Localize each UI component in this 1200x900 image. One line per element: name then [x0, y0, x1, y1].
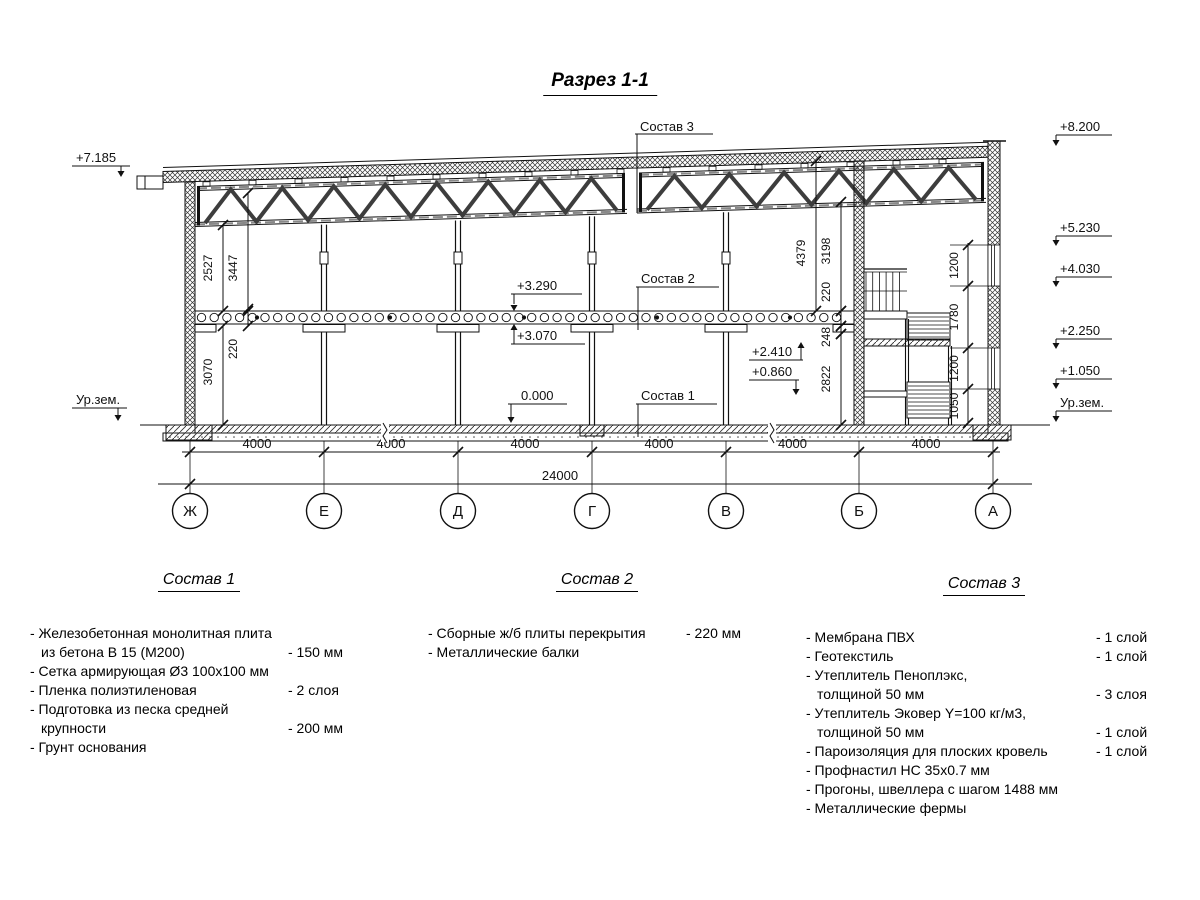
legend-item: - Мембрана ПВХ- 1 слой	[806, 628, 1162, 647]
right-wall	[988, 141, 1000, 425]
legend-item: - Подготовка из песка среднейкрупности- …	[30, 700, 368, 738]
axis-letter: Б	[854, 503, 864, 520]
legend-block-3: Состав 3- Мембрана ПВХ- 1 слой- Геотекст…	[806, 574, 1162, 818]
legend-line: - Грунт основания	[30, 738, 288, 757]
dim-label: 1200	[947, 355, 961, 382]
legend-line: - Пленка полиэтиленовая	[30, 681, 288, 700]
legend-line: - Железобетонная монолитная плита	[30, 624, 288, 643]
elevation-mark-roof-left: +7.185	[72, 150, 130, 177]
legend-value: - 1 слой	[1096, 647, 1162, 666]
column-splice	[320, 252, 328, 264]
legend-item: - Утеплитель Эковер Y=100 кг/м3,толщиной…	[806, 704, 1162, 742]
elevation-label: +0.860	[752, 364, 792, 379]
legend-line: - Подготовка из песка средней	[30, 700, 288, 719]
elevation-mark-slab-top: +3.290	[511, 278, 583, 311]
elevation-label: +3.070	[517, 328, 557, 343]
legend-line: - Профнастил НС 35х0.7 мм	[806, 761, 1096, 780]
legend-item: - Пленка полиэтиленовая- 2 слоя	[30, 681, 368, 700]
window-lower	[988, 348, 1000, 389]
legend-item: - Пароизоляция для плоских кровель- 1 сл…	[806, 742, 1162, 761]
steel-beam	[705, 325, 747, 333]
legend-heading: Состав 2	[556, 570, 638, 592]
dim-label: 3198	[819, 237, 833, 264]
elevation-mark-landing-upper: +2.410	[749, 342, 805, 360]
legend-item: - Утеплитель Пеноплэкс,толщиной 50 мм- 3…	[806, 666, 1162, 704]
elevation-label: 0.000	[521, 388, 554, 403]
legend-value: - 3 слоя	[1096, 685, 1162, 704]
elevation-label: +2.410	[752, 344, 792, 359]
legend-line: - Прогоны, швеллера с шагом 1488 мм	[806, 780, 1096, 799]
stair-flight-lower	[907, 382, 950, 418]
dim-label: 1050	[947, 392, 961, 419]
elevation-mark-landing-lower: +0.860	[749, 364, 800, 395]
dim-label: 2822	[819, 365, 833, 392]
legend-value: - 1 слой	[1096, 742, 1162, 761]
elevation-label: +1.050	[1060, 363, 1100, 378]
drawing-title: Разрез 1-1	[543, 70, 657, 96]
legend-line: из бетона В 15 (М200)	[30, 643, 288, 662]
landing-second-floor	[864, 311, 907, 319]
elevation-label: Ур.зем.	[76, 392, 120, 407]
elevation-label: +2.250	[1060, 323, 1100, 338]
legend-block-2: Состав 2- Сборные ж/б плиты перекрытия- …	[428, 570, 766, 662]
dim-label: 3070	[201, 358, 215, 385]
legend-heading: Состав 3	[943, 574, 1025, 596]
legend-item: - Сетка армирующая Ø3 100х100 мм	[30, 662, 368, 681]
dim-label: 4000	[912, 436, 941, 451]
steel-beam	[437, 325, 479, 333]
dim-label: 4000	[243, 436, 272, 451]
legend-item: - Металлические балки	[428, 643, 766, 662]
legend-line: крупности	[30, 719, 288, 738]
elevation-mark-ground-left: Ур.зем.	[72, 392, 127, 421]
dim-label: 248	[819, 327, 833, 347]
dim-label: 24000	[542, 468, 578, 483]
dim-label: 4379	[794, 239, 808, 266]
legend-line: толщиной 50 мм	[806, 723, 1096, 742]
axis-letter: Ж	[183, 503, 197, 520]
legend-line: - Сборные ж/б плиты перекрытия	[428, 624, 686, 643]
legend-value: - 220 мм	[686, 624, 766, 643]
steel-beam	[195, 325, 216, 333]
elevation-mark-floor: 0.000	[508, 388, 568, 423]
legend-heading: Состав 1	[158, 570, 240, 592]
leader-label: Состав 3	[640, 119, 694, 134]
legend-item: - Железобетонная монолитная плитаиз бето…	[30, 624, 368, 662]
legend-value: - 1 слой	[1096, 628, 1162, 647]
landing-mid	[864, 339, 950, 346]
dim-label: 220	[819, 282, 833, 302]
legend-line: - Утеплитель Пеноплэкс,	[806, 666, 1096, 685]
legend-item: - Профнастил НС 35х0.7 мм	[806, 761, 1162, 780]
dim-label: 1780	[947, 303, 961, 330]
dim-label: 2527	[201, 254, 215, 281]
dim-label: 1200	[947, 252, 961, 279]
elevation-label: +8.200	[1060, 119, 1100, 134]
legend-line: - Мембрана ПВХ	[806, 628, 1096, 647]
axis-letter: Д	[453, 503, 463, 520]
legend-item: - Сборные ж/б плиты перекрытия- 220 мм	[428, 624, 766, 643]
legend-value: - 150 мм	[288, 643, 368, 662]
legend-value: - 2 слоя	[288, 681, 368, 700]
leader-label: Состав 1	[641, 388, 695, 403]
axis-letter: В	[721, 503, 731, 520]
legend-item: - Прогоны, швеллера с шагом 1488 мм	[806, 780, 1162, 799]
interior-wall-b	[854, 161, 864, 425]
truss-diagonals	[205, 178, 617, 223]
roof-edge-channel	[137, 176, 163, 189]
dim-label: 4000	[645, 436, 674, 451]
elevation-label: +4.030	[1060, 261, 1100, 276]
column-splice	[722, 252, 730, 264]
legend-value: - 200 мм	[288, 719, 368, 738]
legend-item: - Геотекстиль- 1 слой	[806, 647, 1162, 666]
legend-value: - 1 слой	[1096, 723, 1162, 742]
dim-label: 3447	[226, 254, 240, 281]
legend-line: толщиной 50 мм	[806, 685, 1096, 704]
legend-line: - Металлические фермы	[806, 799, 1096, 818]
legend-line: - Геотекстиль	[806, 647, 1096, 666]
left-wall	[185, 182, 195, 425]
foundation-left	[166, 425, 212, 440]
axis-letter: Е	[319, 503, 329, 520]
landing-lower	[864, 391, 907, 397]
steel-beam	[303, 325, 345, 333]
leader-label: Состав 2	[641, 271, 695, 286]
legend-line: - Пароизоляция для плоских кровель	[806, 742, 1096, 761]
legend-line: - Сетка армирующая Ø3 100х100 мм	[30, 662, 288, 681]
drawing-sheet: Разрез 1-1	[0, 0, 1200, 900]
column-splice	[588, 252, 596, 264]
elevation-label: Ур.зем.	[1060, 395, 1104, 410]
elevation-label: +5.230	[1060, 220, 1100, 235]
legend-block-1: Состав 1- Железобетонная монолитная плит…	[30, 570, 368, 757]
legend-item: - Грунт основания	[30, 738, 368, 757]
window-upper	[988, 245, 1000, 286]
steel-beam	[571, 325, 613, 333]
legend-line: - Утеплитель Эковер Y=100 кг/м3,	[806, 704, 1096, 723]
staircase	[864, 269, 952, 425]
dim-label: 4000	[778, 436, 807, 451]
axis-letter: Г	[588, 503, 596, 520]
roof-deck	[137, 141, 1006, 189]
legend-line: - Металлические балки	[428, 643, 686, 662]
axis-letter: А	[988, 503, 998, 520]
foundation-mid	[580, 425, 604, 436]
column-splice	[454, 252, 462, 264]
dim-label: 4000	[511, 436, 540, 451]
foundation-right	[973, 425, 1011, 440]
elevation-label: +3.290	[517, 278, 557, 293]
elevation-label: +7.185	[76, 150, 116, 165]
legend-item: - Металлические фермы	[806, 799, 1162, 818]
dim-label: 4000	[377, 436, 406, 451]
dim-label: 220	[226, 339, 240, 359]
